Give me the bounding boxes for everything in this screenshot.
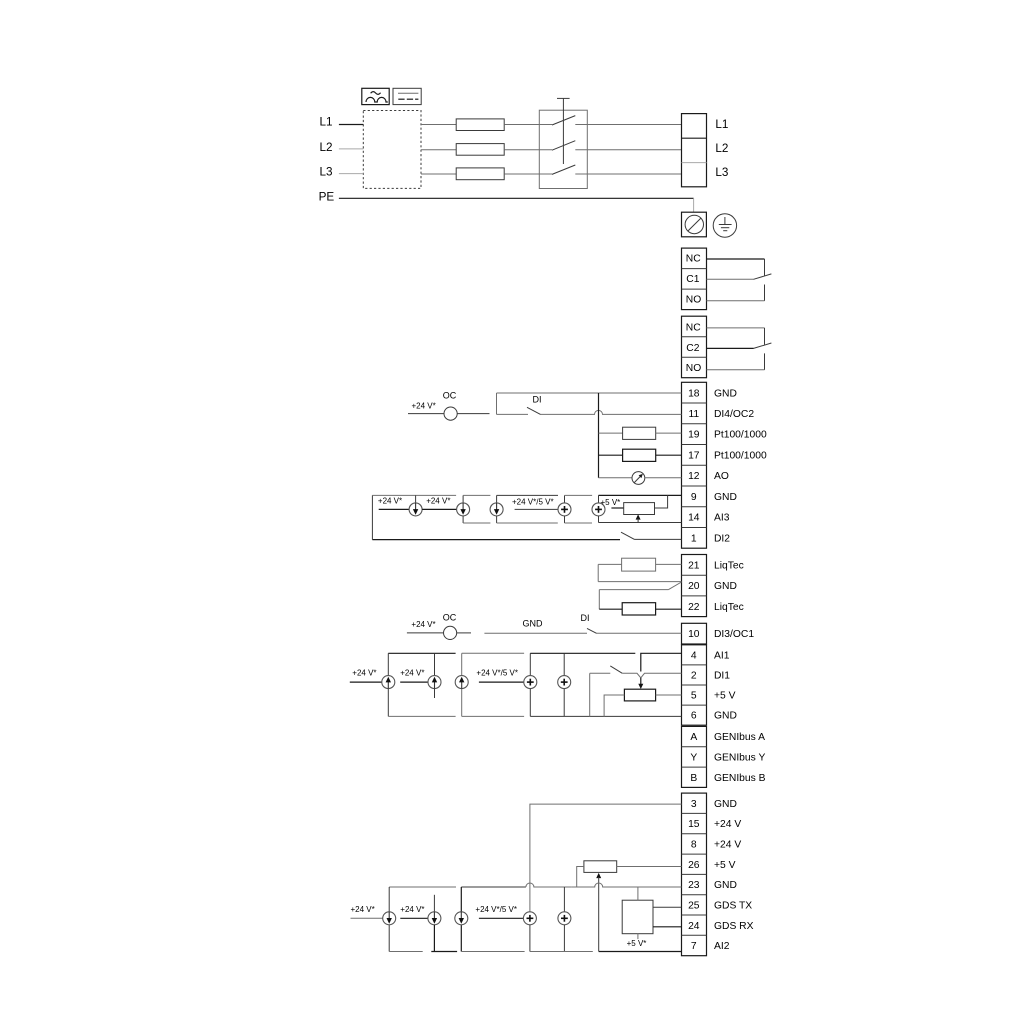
- svg-text:+5 V*: +5 V*: [627, 939, 647, 948]
- svg-text:26: 26: [688, 860, 700, 871]
- svg-text:4: 4: [691, 650, 697, 661]
- svg-text:1: 1: [691, 533, 697, 544]
- svg-text:B: B: [690, 773, 697, 784]
- svg-text:17: 17: [688, 451, 700, 462]
- svg-text:NC: NC: [686, 253, 701, 264]
- svg-text:C1: C1: [686, 274, 699, 285]
- svg-text:GENIbus A: GENIbus A: [714, 732, 765, 743]
- svg-text:GND: GND: [523, 619, 544, 629]
- svg-text:DI1: DI1: [714, 671, 730, 682]
- svg-text:C2: C2: [686, 343, 699, 354]
- svg-text:+5 V*: +5 V*: [601, 498, 621, 507]
- svg-text:AI1: AI1: [714, 650, 730, 661]
- svg-text:5: 5: [691, 691, 697, 702]
- svg-text:2: 2: [691, 671, 697, 682]
- svg-text:GND: GND: [714, 711, 737, 722]
- svg-text:Y: Y: [690, 753, 697, 764]
- svg-text:+24 V*/5 V*: +24 V*/5 V*: [476, 669, 518, 678]
- svg-text:21: 21: [688, 560, 700, 571]
- svg-text:GND: GND: [714, 388, 737, 399]
- svg-text:+24 V*: +24 V*: [378, 497, 402, 506]
- svg-text:LiqTec: LiqTec: [714, 602, 744, 613]
- svg-text:10: 10: [688, 629, 700, 640]
- svg-text:L1: L1: [320, 116, 333, 129]
- svg-text:GDS RX: GDS RX: [714, 921, 754, 932]
- svg-text:AI3: AI3: [714, 513, 730, 524]
- svg-text:18: 18: [688, 388, 700, 399]
- svg-text:+24 V*: +24 V*: [352, 669, 376, 678]
- svg-text:L3: L3: [320, 165, 333, 178]
- svg-text:L2: L2: [715, 142, 728, 155]
- svg-text:L1: L1: [715, 118, 728, 131]
- svg-text:+24 V*: +24 V*: [412, 402, 436, 411]
- svg-text:DI4/OC2: DI4/OC2: [714, 409, 754, 420]
- svg-text:Pt100/1000: Pt100/1000: [714, 451, 767, 462]
- svg-text:15: 15: [688, 819, 700, 830]
- svg-text:PE: PE: [319, 191, 335, 204]
- svg-text:DI: DI: [533, 394, 542, 404]
- svg-text:9: 9: [691, 492, 697, 503]
- svg-text:+24 V: +24 V: [714, 819, 741, 830]
- svg-text:DI3/OC1: DI3/OC1: [714, 629, 754, 640]
- svg-text:DI2: DI2: [714, 533, 730, 544]
- svg-text:NO: NO: [686, 363, 701, 374]
- svg-text:+24 V: +24 V: [714, 840, 741, 851]
- svg-text:GND: GND: [714, 492, 737, 503]
- svg-text:GENIbus Y: GENIbus Y: [714, 753, 765, 764]
- svg-text:+5 V: +5 V: [714, 691, 736, 702]
- svg-text:+5 V: +5 V: [714, 860, 736, 871]
- svg-text:Pt100/1000: Pt100/1000: [714, 430, 767, 441]
- svg-text:NC: NC: [686, 322, 701, 333]
- svg-text:19: 19: [688, 430, 700, 441]
- svg-text:+24 V*/5 V*: +24 V*/5 V*: [475, 905, 517, 914]
- svg-text:+24 V*/5 V*: +24 V*/5 V*: [512, 498, 554, 507]
- svg-text:OC: OC: [443, 613, 457, 623]
- svg-text:DI: DI: [581, 613, 590, 623]
- svg-text:L3: L3: [715, 166, 728, 179]
- svg-text:23: 23: [688, 880, 700, 891]
- svg-text:GND: GND: [714, 799, 737, 810]
- svg-text:GENIbus B: GENIbus B: [714, 773, 766, 784]
- svg-text:GND: GND: [714, 880, 737, 891]
- svg-text:+24 V*: +24 V*: [351, 905, 375, 914]
- svg-text:+24 V*: +24 V*: [400, 669, 424, 678]
- svg-text:6: 6: [691, 711, 697, 722]
- svg-text:22: 22: [688, 602, 700, 613]
- svg-text:+24 V*: +24 V*: [411, 620, 435, 629]
- svg-text:AO: AO: [714, 471, 729, 482]
- svg-text:GND: GND: [714, 581, 737, 592]
- svg-text:AI2: AI2: [714, 941, 730, 952]
- svg-text:8: 8: [691, 840, 697, 851]
- svg-text:7: 7: [691, 941, 697, 952]
- svg-text:NO: NO: [686, 294, 701, 305]
- svg-text:12: 12: [688, 471, 700, 482]
- svg-text:A: A: [690, 732, 697, 743]
- svg-text:LiqTec: LiqTec: [714, 560, 744, 571]
- svg-text:GDS TX: GDS TX: [714, 901, 752, 912]
- svg-text:24: 24: [688, 921, 700, 932]
- svg-text:L2: L2: [320, 141, 333, 154]
- svg-text:14: 14: [688, 513, 700, 524]
- svg-text:25: 25: [688, 901, 700, 912]
- svg-text:3: 3: [691, 799, 697, 810]
- svg-text:+24 V*: +24 V*: [426, 497, 450, 506]
- svg-text:OC: OC: [443, 391, 457, 401]
- svg-text:+24 V*: +24 V*: [400, 905, 424, 914]
- svg-text:20: 20: [688, 581, 700, 592]
- svg-text:11: 11: [688, 409, 699, 420]
